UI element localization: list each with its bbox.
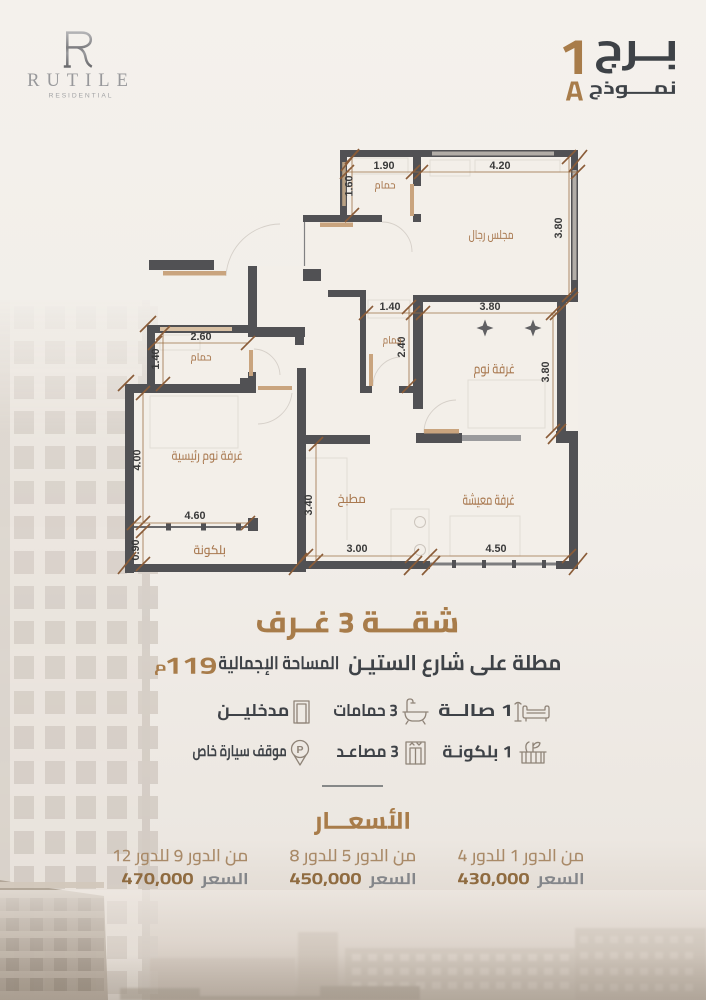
svg-text:4.20: 4.20 <box>489 160 510 172</box>
svg-text:2.60: 2.60 <box>190 331 211 343</box>
svg-text:3.80: 3.80 <box>553 217 565 238</box>
svg-text:P: P <box>296 744 303 756</box>
svg-text:RESIDENTIAL: RESIDENTIAL <box>49 93 114 100</box>
svg-text:3.00: 3.00 <box>346 543 367 555</box>
svg-text:1.60: 1.60 <box>344 175 356 196</box>
svg-text:3.40: 3.40 <box>303 494 315 515</box>
svg-text:2.40: 2.40 <box>396 336 408 357</box>
svg-text:1.90: 1.90 <box>373 160 394 172</box>
svg-text:4.50: 4.50 <box>485 543 506 555</box>
svg-text:4.00: 4.00 <box>132 449 144 470</box>
svg-text:1.40: 1.40 <box>150 348 162 369</box>
svg-text:4.60: 4.60 <box>184 510 205 522</box>
svg-text:3.80: 3.80 <box>479 301 500 313</box>
svg-text:1.40: 1.40 <box>379 301 400 313</box>
svg-text:3.80: 3.80 <box>540 361 552 382</box>
svg-text:RUTILE: RUTILE <box>27 71 135 91</box>
